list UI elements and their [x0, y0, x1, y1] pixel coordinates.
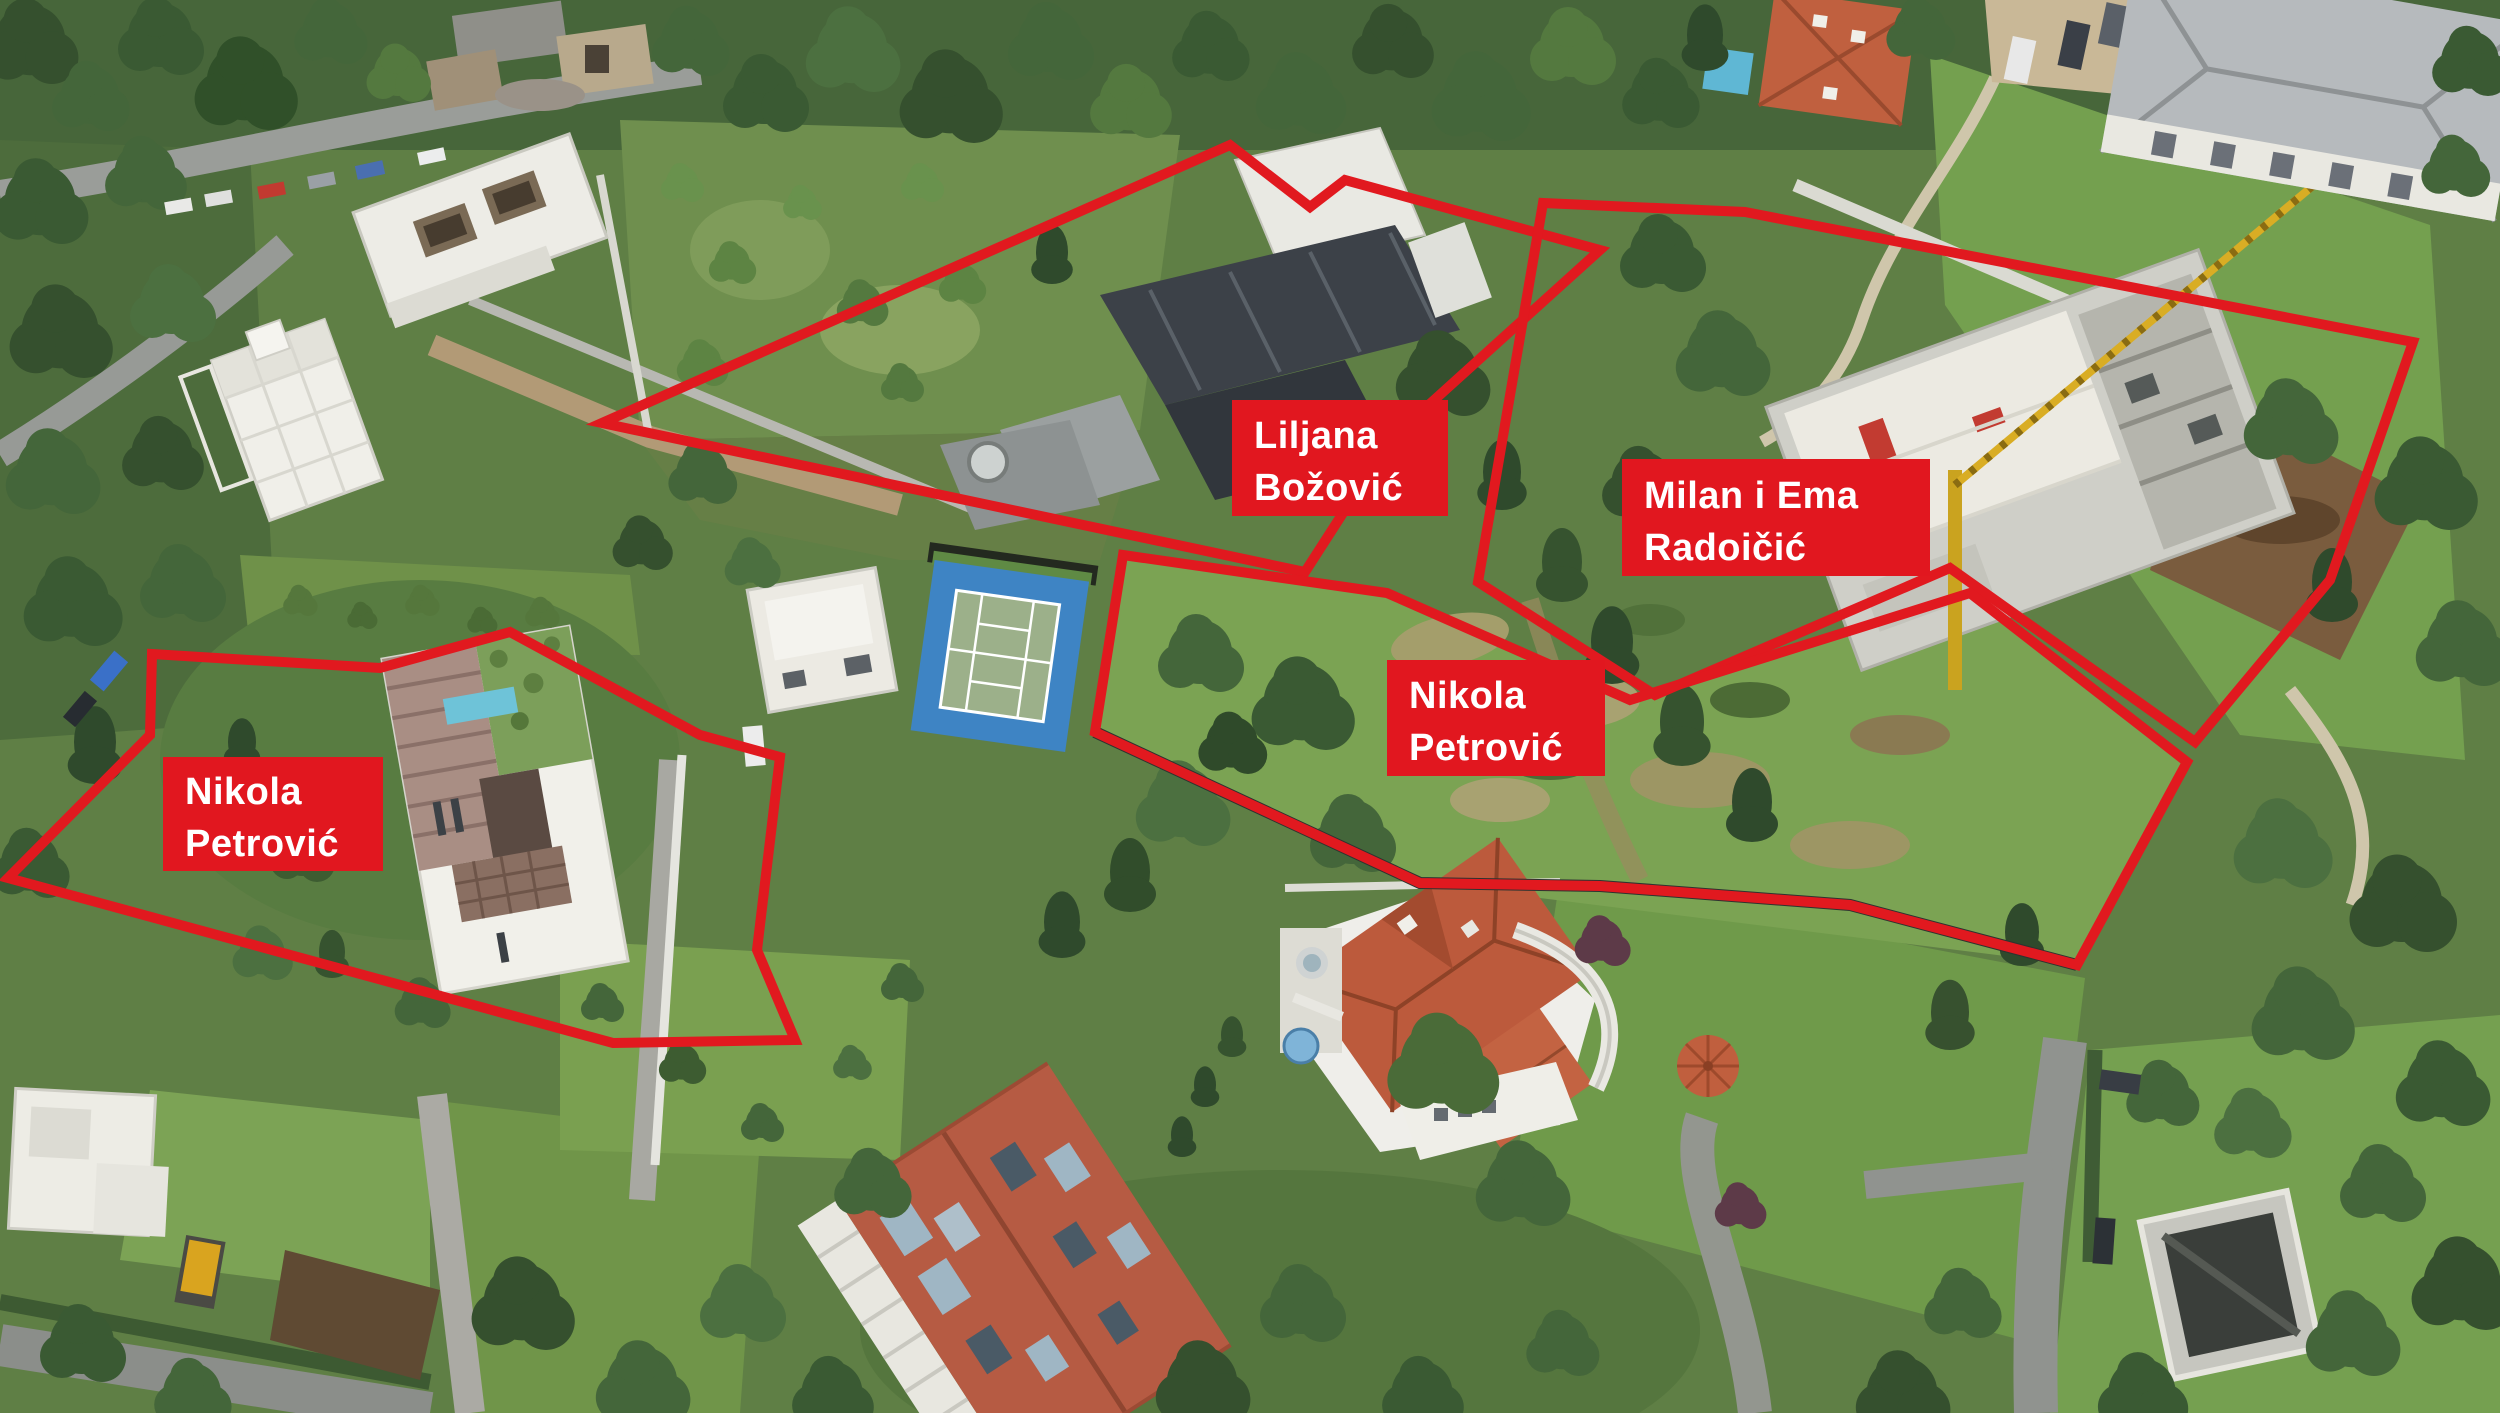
label-line1: Nikola	[185, 771, 302, 813]
road-branch-bottom-right	[1865, 1165, 2052, 1185]
parcel-label-liljana-bozovic: Liljana Božović	[1232, 400, 1448, 516]
hedge-bottom-right-road	[2090, 1050, 2095, 1262]
building-orange-villa-top-right	[1759, 0, 1918, 125]
label-line1: Nikola	[1409, 675, 1526, 717]
tennis-court	[904, 542, 1099, 753]
label-line2: Petrović	[185, 823, 339, 865]
building-small-white-house	[747, 568, 897, 713]
label-line2: Božović	[1254, 467, 1403, 509]
label-line1: Milan i Ema	[1644, 475, 1859, 517]
parcel-label-nikola-petrovic-main: Nikola Petrović	[1387, 660, 1605, 776]
parcel-label-nikola-petrovic-left: Nikola Petrović	[163, 757, 383, 871]
helipad-circle	[969, 443, 1007, 481]
aerial-photo-frame: Liljana Božović Milan i Ema Radoičić Nik…	[0, 0, 2500, 1413]
garage-ramp-bottom-right	[2140, 1191, 2320, 1379]
aerial-photo: Liljana Božović Milan i Ema Radoičić Nik…	[0, 0, 2500, 1413]
gazebo	[1677, 1035, 1739, 1097]
trampoline	[1284, 1029, 1318, 1063]
parcel-label-milan-ema-radoicic: Milan i Ema Radoičić	[1622, 459, 1930, 576]
label-line2: Radoičić	[1644, 527, 1806, 569]
label-line2: Petrović	[1409, 727, 1563, 769]
label-line1: Liljana	[1254, 415, 1378, 457]
